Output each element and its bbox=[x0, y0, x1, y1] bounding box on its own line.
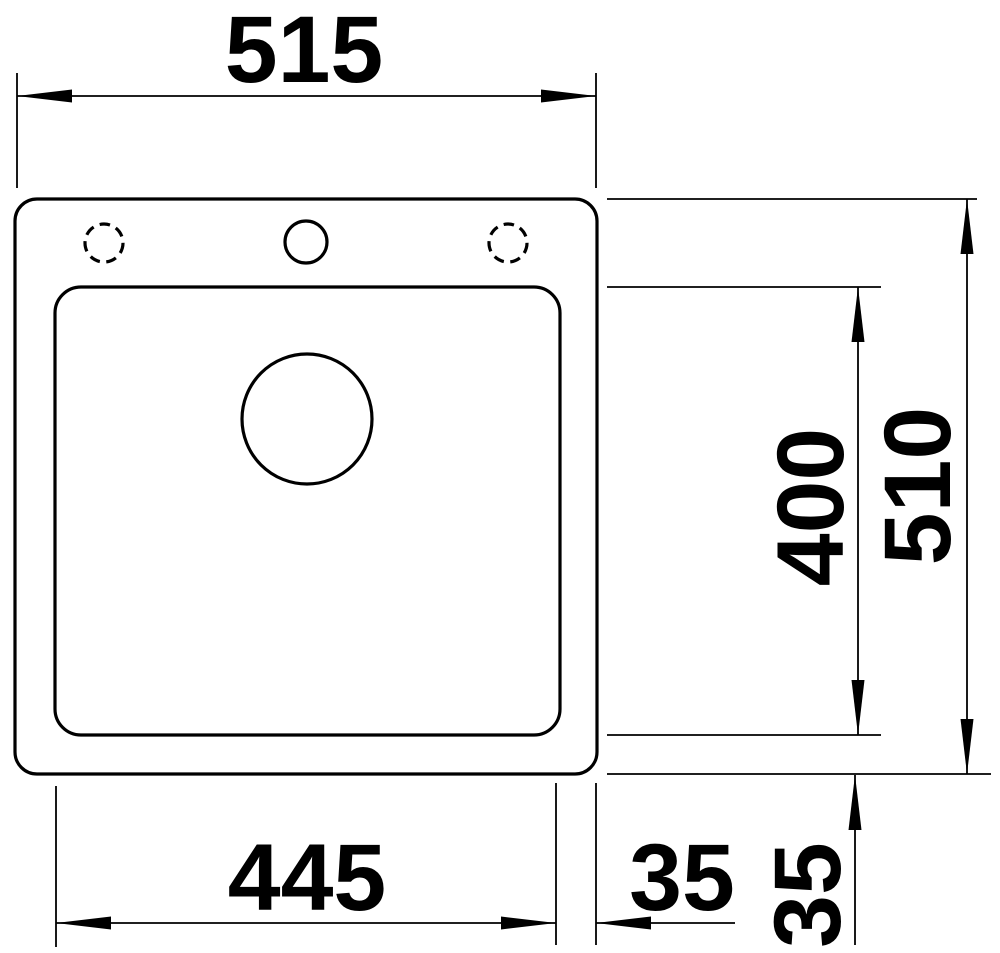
arrowhead-left-icon bbox=[56, 917, 111, 930]
faucet-hole-right-dashed bbox=[489, 224, 527, 262]
sink-outline-group bbox=[15, 199, 597, 774]
arrowhead-down-icon bbox=[961, 719, 974, 774]
dimension-bowl-depth: 400 bbox=[607, 287, 881, 735]
dimension-label-515: 515 bbox=[225, 0, 384, 103]
drawing-svg: 515 510 400 445 bbox=[0, 0, 1000, 953]
arrowhead-up-icon bbox=[961, 199, 974, 254]
arrowhead-right-icon bbox=[541, 90, 596, 103]
dimension-gap-right: 35 bbox=[596, 825, 735, 931]
arrowhead-right-icon bbox=[501, 917, 556, 930]
arrowhead-up-icon bbox=[849, 775, 862, 830]
arrowhead-up-icon bbox=[852, 287, 865, 342]
dimension-overall-width: 515 bbox=[17, 0, 596, 188]
dimension-bowl-width: 445 bbox=[56, 783, 596, 947]
dimension-label-510: 510 bbox=[865, 407, 971, 566]
drain-hole bbox=[242, 354, 372, 484]
dimension-label-35-vertical: 35 bbox=[755, 842, 861, 948]
sink-outer-edge bbox=[15, 199, 597, 774]
arrowhead-down-icon bbox=[852, 680, 865, 735]
faucet-hole-left-dashed bbox=[85, 224, 123, 262]
dimension-gap-bottom: 35 bbox=[755, 775, 862, 948]
dimension-label-445: 445 bbox=[228, 825, 387, 931]
sink-technical-drawing: 515 510 400 445 bbox=[0, 0, 1000, 953]
dimension-label-35-horizontal: 35 bbox=[629, 825, 735, 931]
arrowhead-left-icon bbox=[17, 90, 72, 103]
faucet-hole-center bbox=[285, 221, 327, 263]
dimension-label-400: 400 bbox=[758, 428, 864, 587]
